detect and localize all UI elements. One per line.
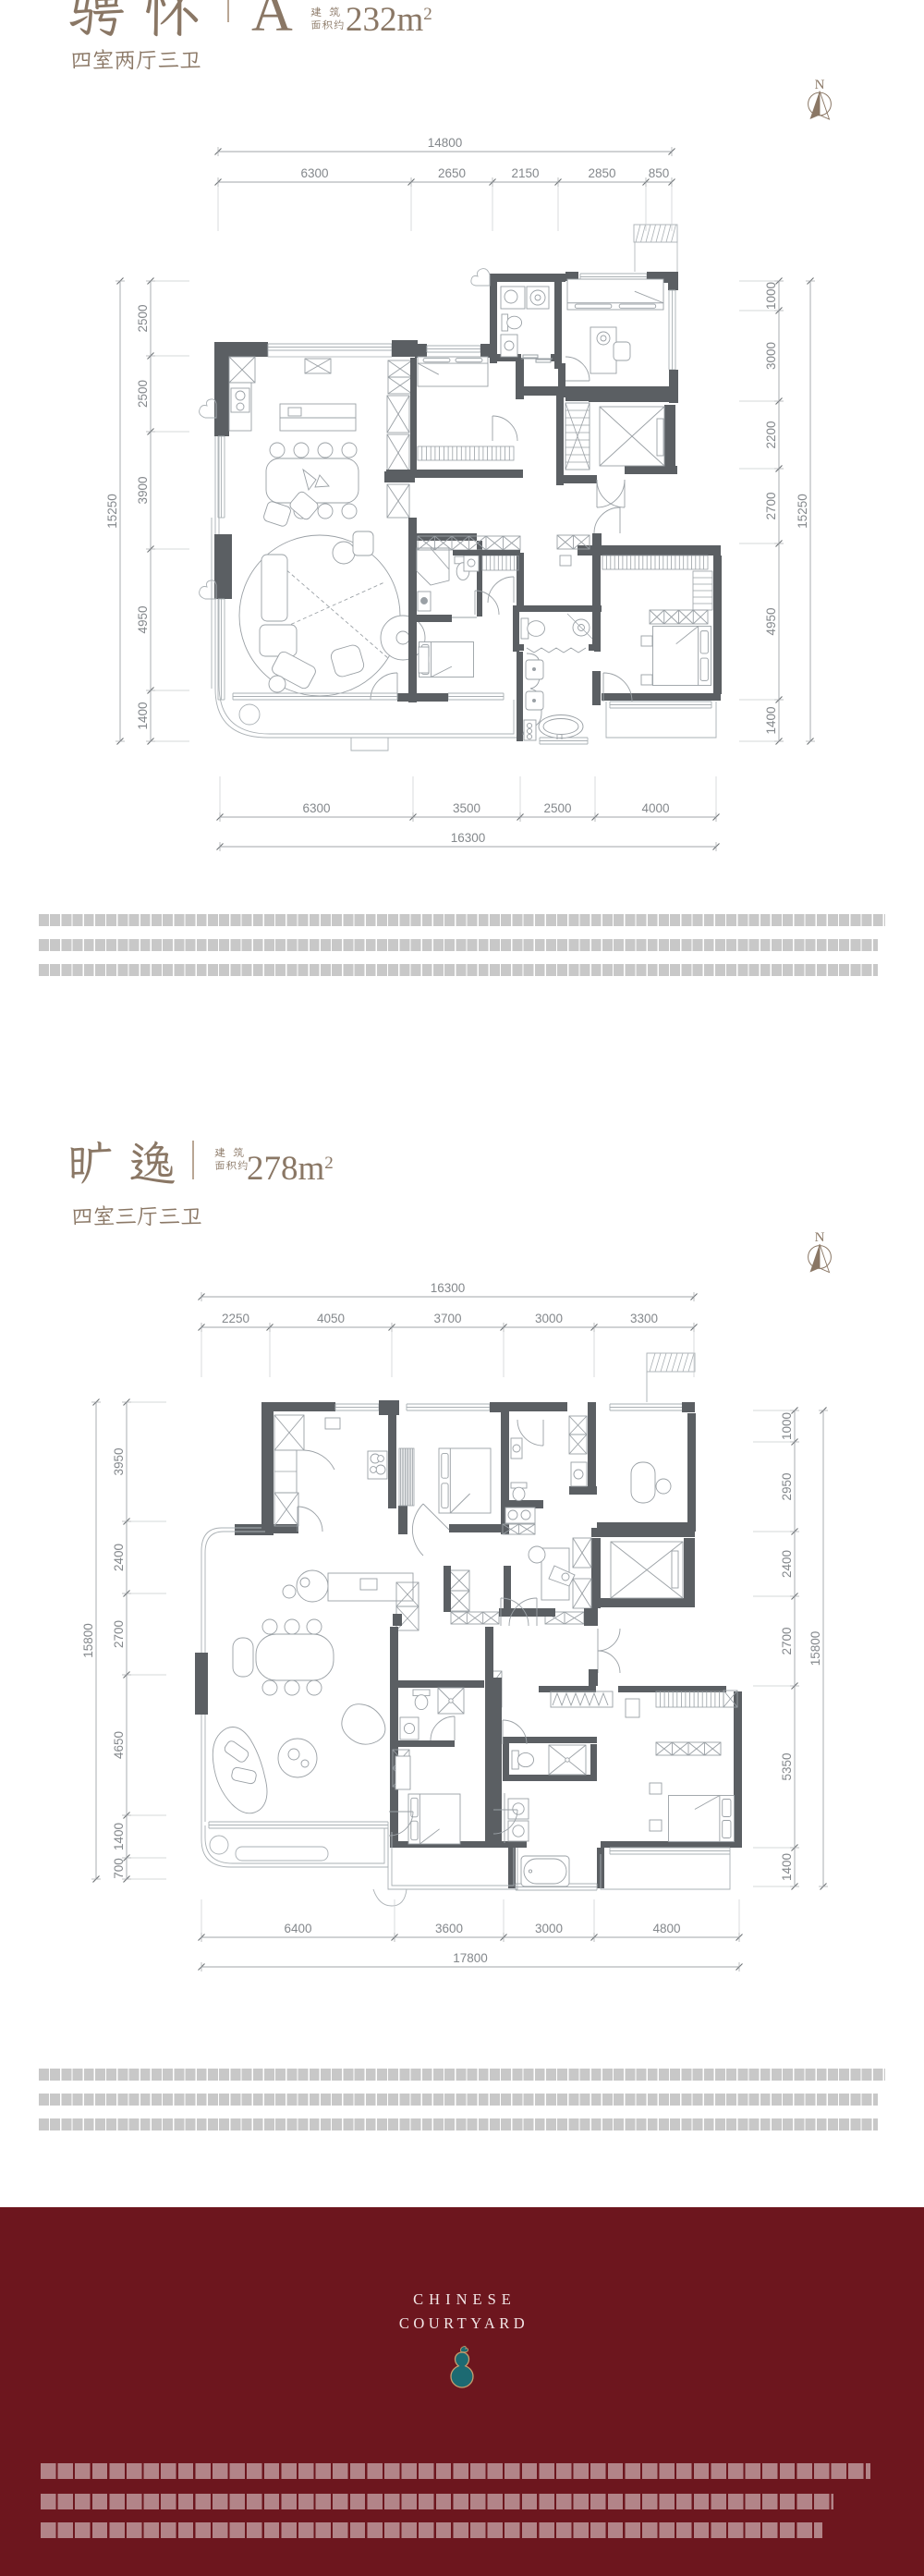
- svg-text:6300: 6300: [300, 166, 328, 180]
- svg-text:1000: 1000: [764, 282, 778, 310]
- svg-text:15800: 15800: [81, 1623, 95, 1658]
- svg-text:3700: 3700: [433, 1312, 461, 1325]
- svg-text:4950: 4950: [764, 607, 778, 635]
- svg-text:1400: 1400: [764, 706, 778, 734]
- svg-text:3000: 3000: [764, 342, 778, 370]
- svg-text:2400: 2400: [112, 1544, 126, 1571]
- svg-text:2500: 2500: [136, 304, 150, 332]
- svg-text:850: 850: [649, 166, 670, 180]
- svg-text:6300: 6300: [302, 801, 330, 815]
- svg-text:3300: 3300: [630, 1312, 658, 1325]
- svg-text:5350: 5350: [780, 1752, 794, 1780]
- svg-text:1400: 1400: [780, 1853, 794, 1881]
- svg-text:2500: 2500: [136, 380, 150, 408]
- svg-text:4650: 4650: [112, 1731, 126, 1759]
- svg-text:15250: 15250: [796, 494, 809, 529]
- svg-text:1400: 1400: [112, 1823, 126, 1850]
- svg-text:2250: 2250: [222, 1312, 249, 1325]
- svg-text:15250: 15250: [105, 494, 119, 529]
- svg-text:4950: 4950: [136, 605, 150, 633]
- svg-text:3000: 3000: [535, 1922, 563, 1935]
- svg-text:1400: 1400: [136, 702, 150, 729]
- svg-text:1000: 1000: [780, 1412, 794, 1440]
- svg-text:3900: 3900: [136, 476, 150, 504]
- svg-text:2950: 2950: [780, 1472, 794, 1500]
- svg-text:16300: 16300: [451, 831, 486, 845]
- svg-text:2200: 2200: [764, 421, 778, 448]
- svg-text:2400: 2400: [780, 1550, 794, 1578]
- svg-text:2700: 2700: [780, 1627, 794, 1654]
- svg-text:15800: 15800: [808, 1631, 822, 1666]
- svg-text:278m2: 278m2: [247, 1150, 334, 1188]
- svg-text:4800: 4800: [652, 1922, 680, 1935]
- svg-text:2700: 2700: [112, 1620, 126, 1648]
- svg-text:16300: 16300: [431, 1281, 466, 1295]
- svg-text:14800: 14800: [428, 136, 463, 150]
- svg-text:2650: 2650: [438, 166, 466, 180]
- svg-text:3600: 3600: [435, 1922, 463, 1935]
- svg-text:3000: 3000: [535, 1312, 563, 1325]
- svg-text:2700: 2700: [764, 492, 778, 519]
- svg-text:700: 700: [112, 1858, 126, 1879]
- svg-text:6400: 6400: [284, 1922, 311, 1935]
- svg-text:2150: 2150: [511, 166, 539, 180]
- svg-text:4050: 4050: [317, 1312, 345, 1325]
- svg-text:3500: 3500: [453, 801, 480, 815]
- svg-text:4000: 4000: [641, 801, 669, 815]
- svg-text:17800: 17800: [453, 1951, 488, 1965]
- svg-text:2500: 2500: [543, 801, 571, 815]
- svg-text:3950: 3950: [112, 1447, 126, 1475]
- svg-text:2850: 2850: [588, 166, 615, 180]
